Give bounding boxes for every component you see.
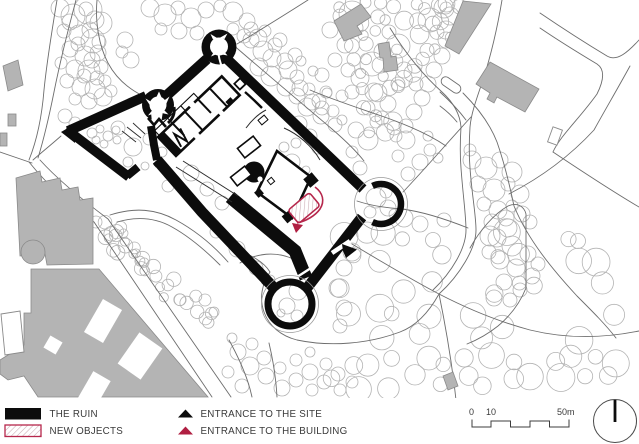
svg-text:0: 0 [469, 407, 474, 417]
svg-text:ENTRANCE TO THE BUILDING: ENTRANCE TO THE BUILDING [201, 426, 348, 437]
svg-text:50m: 50m [557, 407, 575, 417]
svg-text:NEW OBJECTS: NEW OBJECTS [50, 426, 124, 437]
svg-text:10: 10 [486, 407, 496, 417]
svg-text:THE RUIN: THE RUIN [50, 409, 98, 420]
svg-text:ENTRANCE TO THE SITE: ENTRANCE TO THE SITE [201, 409, 323, 420]
